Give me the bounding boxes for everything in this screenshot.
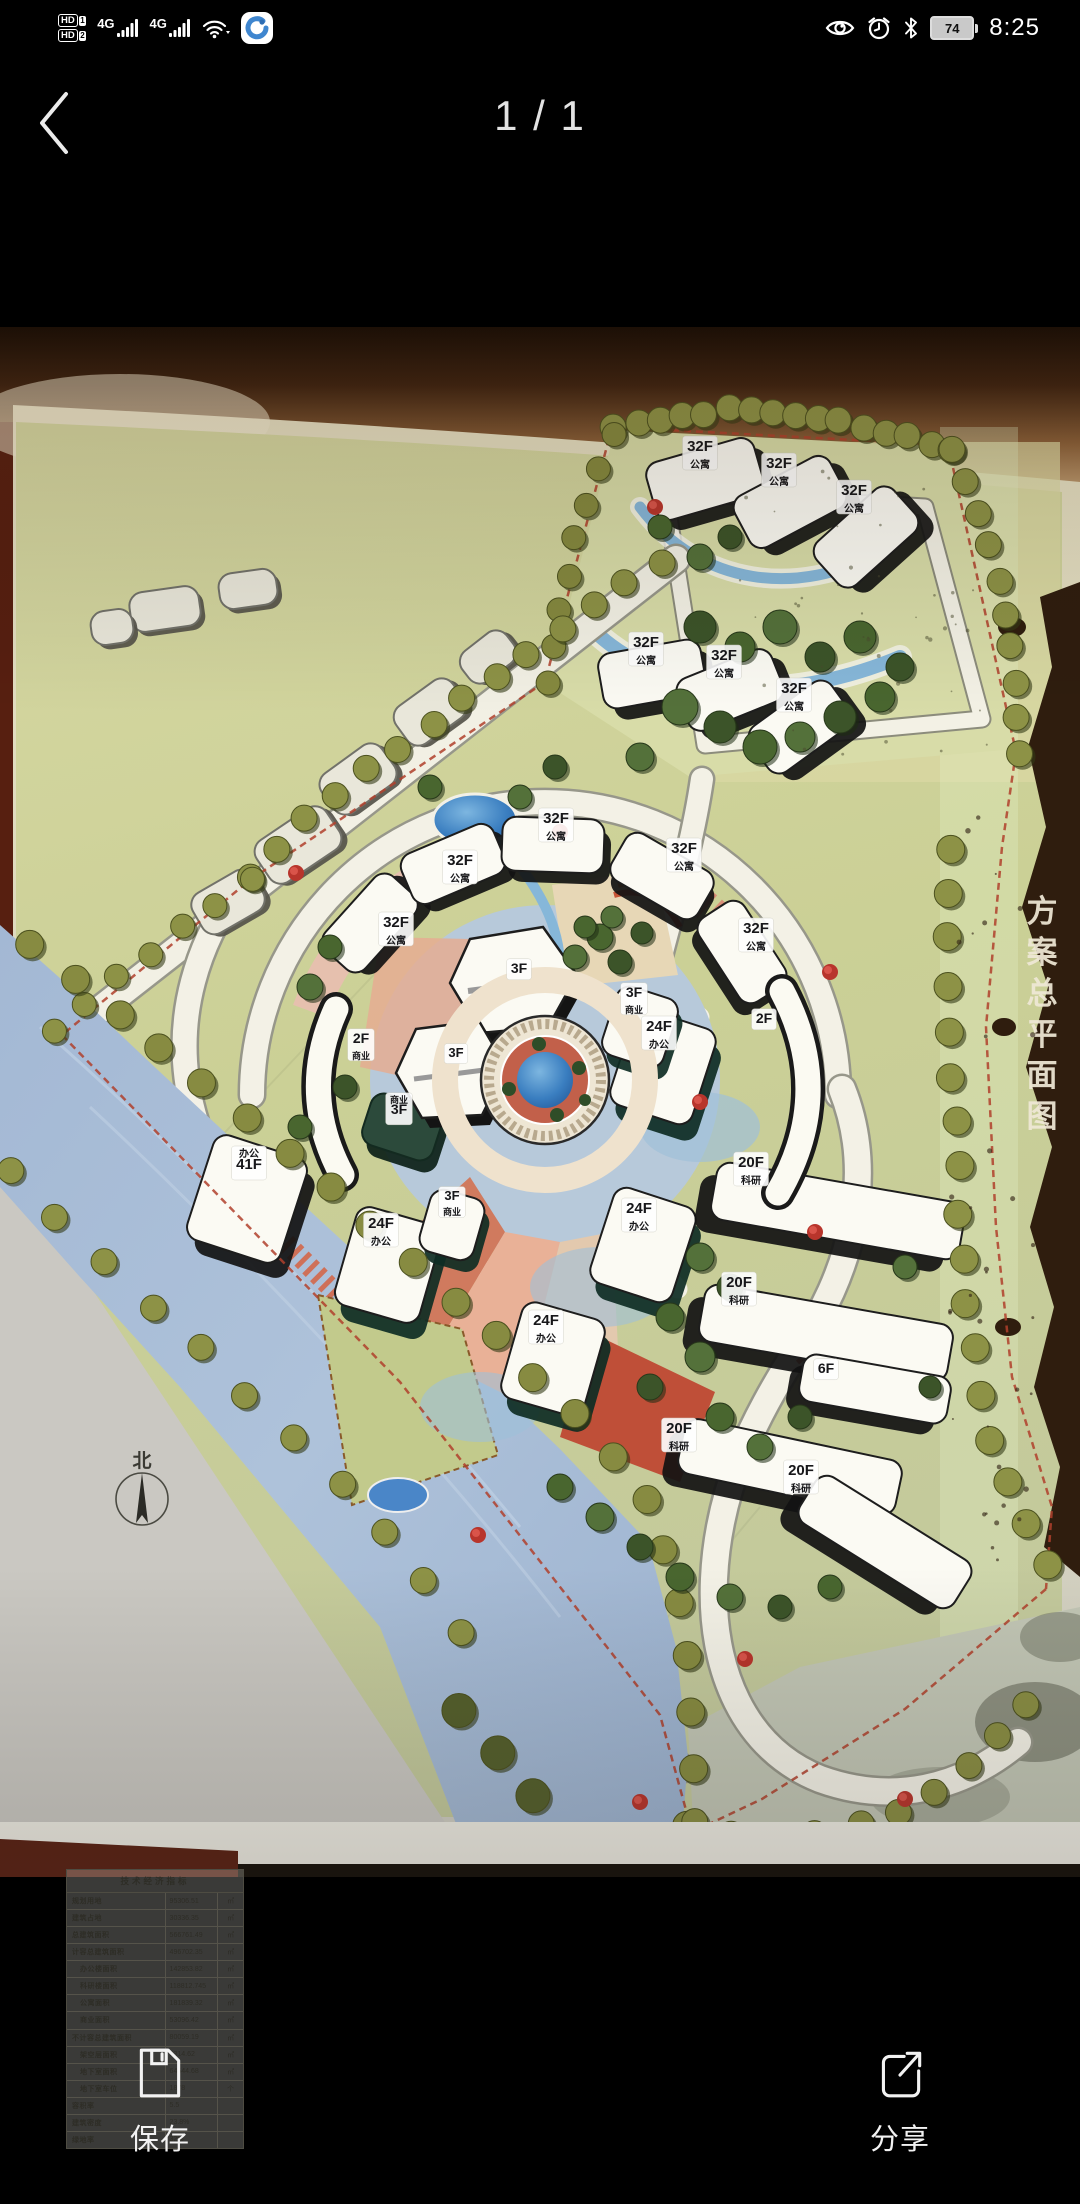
svg-text:科研: 科研 — [741, 1174, 761, 1187]
svg-text:32F: 32F — [383, 914, 409, 931]
svg-text:32F: 32F — [447, 852, 473, 869]
svg-text:办公: 办公 — [536, 1332, 556, 1345]
plan-label: 24F办公 — [622, 1198, 657, 1233]
plan-label: 办公41F — [232, 1146, 267, 1180]
svg-text:办公: 办公 — [629, 1220, 649, 1233]
svg-text:24F: 24F — [368, 1215, 394, 1232]
svg-text:32F: 32F — [743, 920, 769, 937]
svg-text:20F: 20F — [788, 1462, 814, 1479]
svg-text:公寓: 公寓 — [450, 872, 470, 885]
svg-text:商业: 商业 — [443, 1206, 461, 1217]
svg-text:2F: 2F — [353, 1030, 370, 1046]
plan-label: 24F办公 — [364, 1213, 399, 1248]
svg-text:32F: 32F — [841, 482, 867, 499]
clock-time: 8:25 — [989, 14, 1040, 42]
plan-label: 32F公寓 — [762, 453, 797, 488]
svg-text:科研: 科研 — [729, 1294, 749, 1307]
side-title-char: 方 — [1027, 894, 1058, 930]
status-bar: HD1 HD2 4G 4G — [0, 0, 1080, 56]
svg-text:3F: 3F — [444, 1188, 459, 1203]
signal-sim2-icon: 4G — [150, 18, 191, 38]
svg-text:商业: 商业 — [625, 1004, 643, 1015]
plan-label: 32F公寓 — [683, 436, 718, 471]
plan-label: 20F科研 — [662, 1418, 697, 1453]
side-title-char: 图 — [1027, 1099, 1058, 1135]
svg-text:32F: 32F — [781, 680, 807, 697]
plan-label: 24F办公 — [529, 1310, 564, 1345]
svg-text:公寓: 公寓 — [784, 700, 804, 713]
table-title: 技术经济指标 — [67, 1870, 243, 1893]
table-row: 公寓面积181839.32㎡ — [67, 1995, 243, 2012]
svg-text:20F: 20F — [666, 1420, 692, 1437]
save-label: 保存 — [130, 2116, 190, 2158]
share-label: 分享 — [870, 2116, 930, 2158]
svg-text:3F: 3F — [511, 960, 528, 976]
svg-text:24F: 24F — [646, 1018, 672, 1035]
volte-hd-badges: HD1 HD2 — [58, 14, 86, 42]
plan-label: 32F公寓 — [443, 850, 478, 885]
svg-text:6F: 6F — [818, 1360, 835, 1376]
page-indicator: 1 / 1 — [0, 92, 1080, 140]
plan-label: 32F公寓 — [777, 678, 812, 713]
side-title-char: 面 — [1027, 1058, 1058, 1094]
table-row: 商业面积53096.42㎡ — [67, 2012, 243, 2029]
wifi-icon — [202, 18, 230, 39]
plan-label: 6F — [814, 1359, 839, 1380]
svg-text:科研: 科研 — [669, 1440, 689, 1453]
photo-master-plan[interactable]: 方案总平面图 北 32F公寓32F公寓32F公寓32F公寓32F公寓32F公寓3… — [0, 327, 1080, 1877]
svg-text:32F: 32F — [687, 438, 713, 455]
plan-label: 20F科研 — [734, 1152, 769, 1187]
svg-text:公寓: 公寓 — [546, 830, 566, 843]
table-row: 科研楼面积118812.745㎡ — [67, 1978, 243, 1995]
plan-label: 2F — [752, 1009, 777, 1030]
signal-sim1-icon: 4G — [97, 18, 138, 38]
save-icon — [131, 2044, 189, 2102]
plan-label: 32F公寓 — [707, 645, 742, 680]
table-row: 总建筑面积566761.49㎡ — [67, 1927, 243, 1944]
svg-text:20F: 20F — [726, 1274, 752, 1291]
svg-text:32F: 32F — [766, 455, 792, 472]
svg-text:32F: 32F — [671, 840, 697, 857]
svg-text:公寓: 公寓 — [714, 667, 734, 680]
svg-text:32F: 32F — [633, 634, 659, 651]
svg-text:公寓: 公寓 — [690, 458, 710, 471]
table-row: 办公楼面积142853.82㎡ — [67, 1961, 243, 1978]
plan-label: 24F办公 — [642, 1016, 677, 1051]
svg-text:商业: 商业 — [352, 1050, 370, 1061]
svg-text:北: 北 — [132, 1450, 151, 1472]
svg-text:公寓: 公寓 — [674, 860, 694, 873]
svg-text:办公: 办公 — [371, 1235, 391, 1248]
save-button[interactable]: 保存 — [100, 2044, 220, 2158]
svg-text:41F: 41F — [236, 1156, 262, 1173]
plan-label: 20F科研 — [722, 1272, 757, 1307]
svg-text:32F: 32F — [711, 647, 737, 664]
plan-label: 32F公寓 — [837, 480, 872, 515]
svg-text:3F: 3F — [626, 984, 643, 1000]
plan-label: 32F公寓 — [379, 912, 414, 947]
svg-text:3F: 3F — [391, 1101, 408, 1117]
svg-text:公寓: 公寓 — [636, 654, 656, 667]
viewer-header: 1 / 1 — [0, 56, 1080, 190]
plan-label: 3F商业 — [621, 983, 648, 1015]
battery-indicator: 74 — [930, 16, 978, 40]
svg-text:20F: 20F — [738, 1154, 764, 1171]
svg-text:3F: 3F — [448, 1045, 463, 1060]
bottom-action-bar: 保存 分享 — [0, 2030, 1080, 2204]
share-icon — [871, 2044, 929, 2102]
svg-text:24F: 24F — [626, 1200, 652, 1217]
plan-label: 32F公寓 — [629, 632, 664, 667]
plan-label: 32F公寓 — [739, 918, 774, 953]
eye-comfort-icon — [825, 18, 855, 38]
svg-text:公寓: 公寓 — [844, 502, 864, 515]
plan-label: 20F科研 — [784, 1460, 819, 1495]
side-title-char: 案 — [1027, 935, 1059, 971]
plan-label: 商业3F — [386, 1093, 413, 1125]
plan-label: 3F — [507, 959, 532, 980]
table-row: 计容总建筑面积496702.35㎡ — [67, 1944, 243, 1961]
bluetooth-icon — [903, 16, 919, 40]
table-row: 规划用地95306.51㎡ — [67, 1893, 243, 1910]
plan-label: 2F商业 — [348, 1029, 375, 1061]
svg-text:32F: 32F — [543, 810, 569, 827]
svg-text:科研: 科研 — [791, 1482, 811, 1495]
notification-app-icon — [241, 12, 273, 44]
svg-text:公寓: 公寓 — [386, 934, 406, 947]
image-viewer-screen: HD1 HD2 4G 4G — [0, 0, 1080, 2204]
plan-label: 32F公寓 — [539, 808, 574, 843]
table-row: 建筑占地30336.35㎡ — [67, 1910, 243, 1927]
plan-label: 32F公寓 — [667, 838, 702, 873]
svg-text:公寓: 公寓 — [746, 940, 766, 953]
svg-text:办公: 办公 — [649, 1038, 669, 1051]
svg-text:24F: 24F — [533, 1312, 559, 1329]
svg-text:2F: 2F — [756, 1010, 773, 1026]
site-plan-drawing: 方案总平面图 北 32F公寓32F公寓32F公寓32F公寓32F公寓32F公寓3… — [0, 327, 1080, 1877]
side-title-char: 总 — [1027, 976, 1058, 1012]
alarm-icon — [866, 15, 892, 41]
plan-label: 3F — [444, 1044, 468, 1064]
svg-text:公寓: 公寓 — [769, 475, 789, 488]
plan-label: 3F商业 — [439, 1187, 466, 1218]
share-button[interactable]: 分享 — [840, 2044, 960, 2158]
